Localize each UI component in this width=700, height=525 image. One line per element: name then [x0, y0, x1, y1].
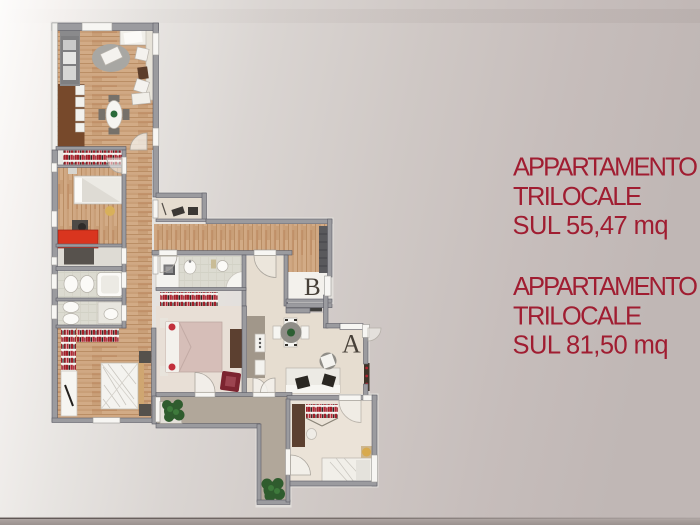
svg-text:B: B	[304, 274, 321, 301]
svg-text:APPARTAMENTO: APPARTAMENTO	[513, 154, 698, 182]
svg-text:A: A	[342, 330, 361, 359]
svg-text:TRILOCALE: TRILOCALE	[513, 183, 642, 211]
svg-text:SUL 81,50 mq: SUL 81,50 mq	[513, 332, 669, 360]
svg-text:TRILOCALE: TRILOCALE	[513, 302, 642, 330]
svg-text:APPARTAMENTO: APPARTAMENTO	[513, 273, 698, 301]
svg-text:SUL 55,47 mq: SUL 55,47 mq	[513, 212, 669, 240]
